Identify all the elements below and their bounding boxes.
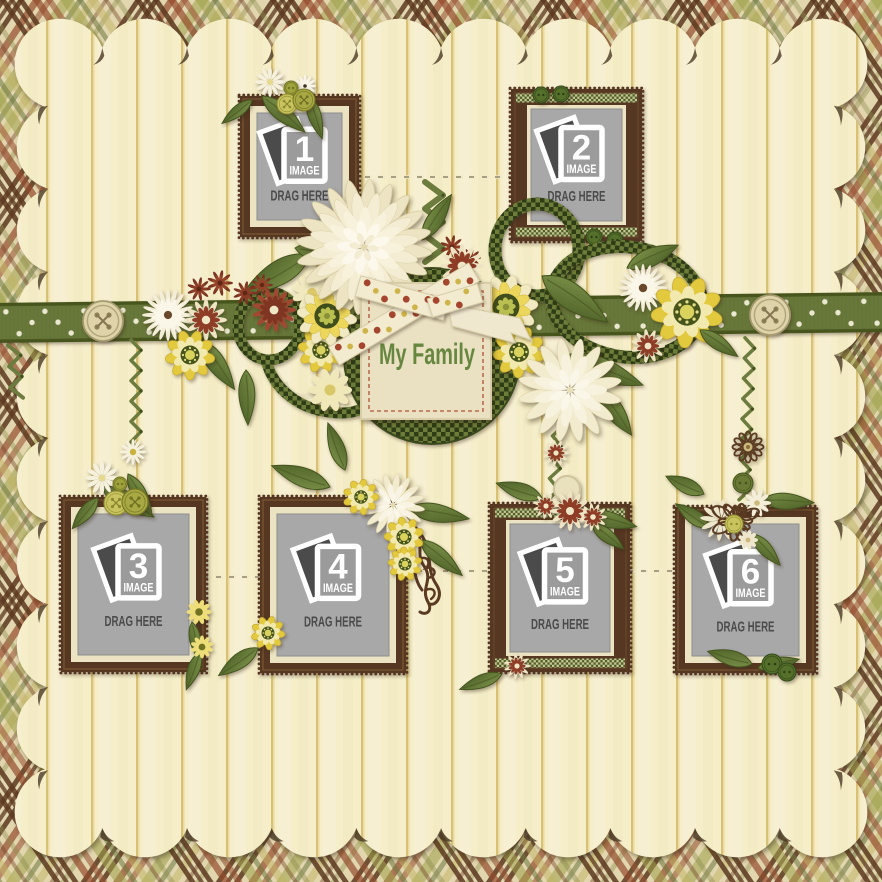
svg-text:DRAG HERE: DRAG HERE	[105, 613, 163, 630]
svg-text:DRAG HERE: DRAG HERE	[271, 188, 329, 205]
svg-text:IMAGE: IMAGE	[550, 584, 580, 598]
svg-text:DRAG HERE: DRAG HERE	[531, 616, 589, 633]
svg-text:DRAG HERE: DRAG HERE	[717, 619, 775, 636]
svg-text:IMAGE: IMAGE	[567, 162, 597, 176]
svg-text:IMAGE: IMAGE	[124, 580, 154, 594]
svg-text:IMAGE: IMAGE	[736, 586, 766, 600]
svg-text:My Family: My Family	[379, 338, 475, 371]
svg-text:IMAGE: IMAGE	[323, 581, 353, 595]
svg-text:DRAG HERE: DRAG HERE	[304, 613, 362, 630]
svg-text:IMAGE: IMAGE	[290, 164, 320, 178]
